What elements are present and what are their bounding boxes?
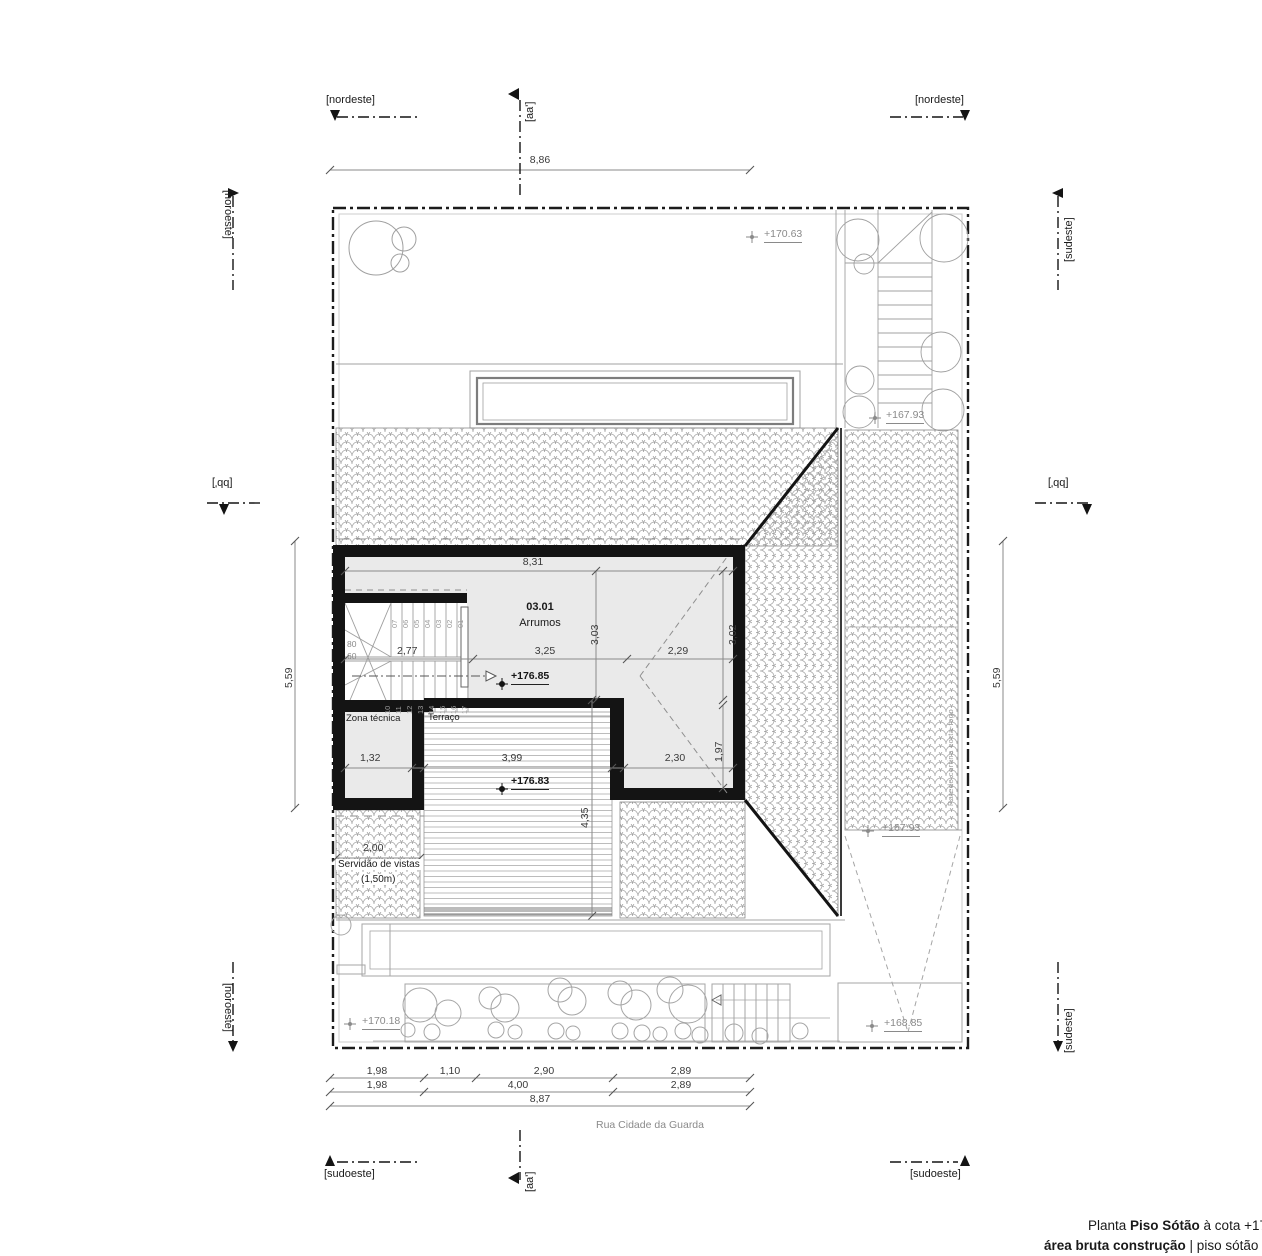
- servidao-note-line2: (1,50m): [359, 874, 397, 885]
- stair-step-number: 06: [401, 620, 410, 628]
- marker-nordeste-right: [nordeste]: [915, 94, 964, 106]
- elevation-marker: [746, 231, 758, 243]
- garden-top: [336, 221, 843, 428]
- title-suffix: à cota +17: [1200, 1218, 1262, 1233]
- stair-step-number: 04: [423, 620, 432, 628]
- dim-bottom-row1: 2,89: [671, 1065, 692, 1077]
- marker-noroeste-top: [noroeste]: [222, 190, 234, 239]
- street-label: Rua Cidade da Guarda: [560, 1120, 740, 1132]
- dim-bottom-row1: 1,98: [367, 1065, 388, 1077]
- exterior-stair-top: [836, 210, 968, 431]
- area-label: área bruta construção: [1044, 1238, 1186, 1253]
- dim-room-depth-left: 3,03: [590, 625, 602, 645]
- room-number-arrumos: 03.01: [505, 601, 575, 613]
- dim-terraco-depth: 4,35: [580, 808, 592, 828]
- dim-room-width: 8,31: [503, 557, 563, 569]
- dim-room-right-span: 2,29: [658, 646, 698, 658]
- room-name-arrumos: Arrumos: [505, 617, 575, 629]
- stair-step-number: 17: [460, 706, 469, 714]
- dim-servidao-width: 2,00: [363, 843, 383, 855]
- stair-step-number: 01: [456, 620, 465, 628]
- elevation-garden-bottom: +170.18: [362, 1016, 400, 1030]
- dim-bottom-row1: 1,10: [440, 1065, 461, 1077]
- stair-step-number: 12: [405, 706, 414, 714]
- stair-riser-label-60: 60: [347, 652, 356, 661]
- dim-stair-run: 2,77: [397, 646, 417, 658]
- dim-wing-width: 2,30: [655, 753, 695, 765]
- stair-riser-label-80: 80: [347, 640, 356, 649]
- title-block-line2: área bruta construção | piso sótão = 03: [1044, 1238, 1262, 1253]
- marker-section-aa-bottom: [aa']: [524, 1172, 536, 1192]
- dim-wing-depth: 1,97: [714, 742, 726, 762]
- room-name-terraco: Terraço: [428, 713, 460, 723]
- dim-bottom-row1: 2,90: [534, 1065, 555, 1077]
- stair-step-number: 05: [412, 620, 421, 628]
- stair-step-number: 07: [390, 620, 399, 628]
- marker-sudoeste-right: [sudoeste]: [910, 1168, 961, 1180]
- marker-sudoeste-left: [sudoeste]: [324, 1168, 375, 1180]
- dim-bottom-row2: 1,98: [367, 1079, 388, 1091]
- dim-terraco-width: 3,99: [492, 753, 532, 765]
- stair-step-number: 02: [445, 620, 454, 628]
- wall-note-vertical: Parede cortina corta-fogo: [947, 709, 955, 806]
- marker-sudeste-top: [sudeste]: [1063, 217, 1075, 262]
- elevation-stair-top: +167.93: [886, 410, 924, 424]
- dim-top-width: 8,86: [500, 155, 580, 167]
- elevation-garden-top: +170.63: [764, 229, 802, 243]
- floor-plan-drawing: 0706050403020110111213141516171,981,102,…: [0, 0, 1262, 1256]
- marker-nordeste-left: [nordeste]: [326, 94, 375, 106]
- dim-left-height: 5,59: [284, 668, 296, 688]
- marker-section-aa-top: [aa']: [524, 102, 536, 122]
- elevation-marker: [866, 1020, 878, 1032]
- elevation-marker: [344, 1018, 356, 1030]
- title-plan-name: Piso Sótão: [1130, 1218, 1200, 1233]
- marker-sudeste-bottom: [sudeste]: [1063, 1008, 1075, 1053]
- dim-bottom-row2: 4,00: [508, 1079, 529, 1091]
- elevation-roof-right: +167.93: [882, 823, 920, 837]
- title-prefix: Planta: [1088, 1218, 1130, 1233]
- dim-room-depth-right: 3,02: [728, 625, 740, 645]
- title-block-line1: Planta Piso Sótão à cota +17: [1088, 1218, 1262, 1233]
- floor-plan-page: 0706050403020110111213141516171,981,102,…: [0, 0, 1262, 1256]
- dim-zona-width: 1,32: [360, 753, 380, 765]
- elevation-driveway: +168.85: [884, 1018, 922, 1032]
- dim-bottom-row2: 2,89: [671, 1079, 692, 1091]
- stair-step-number: 13: [416, 706, 425, 714]
- stair-step-number: 03: [434, 620, 443, 628]
- elevation-arrumos: +176.85: [511, 671, 549, 685]
- room-name-zona-tecnica: Zona técnica: [346, 714, 400, 724]
- marker-section-bb-left: [bb']: [212, 477, 232, 489]
- marker-section-bb-right: [bb']: [1048, 477, 1068, 489]
- servidao-note-line1: Servidão de vistas: [336, 859, 422, 870]
- dim-bottom-total: 8,87: [500, 1094, 580, 1106]
- dim-right-height: 5,59: [992, 668, 1004, 688]
- area-value: | piso sótão = 03: [1186, 1238, 1262, 1253]
- marker-noroeste-bottom: [noroeste]: [222, 983, 234, 1032]
- elevation-terraco: +176.83: [511, 776, 549, 790]
- dim-room-left-span: 3,25: [525, 646, 565, 658]
